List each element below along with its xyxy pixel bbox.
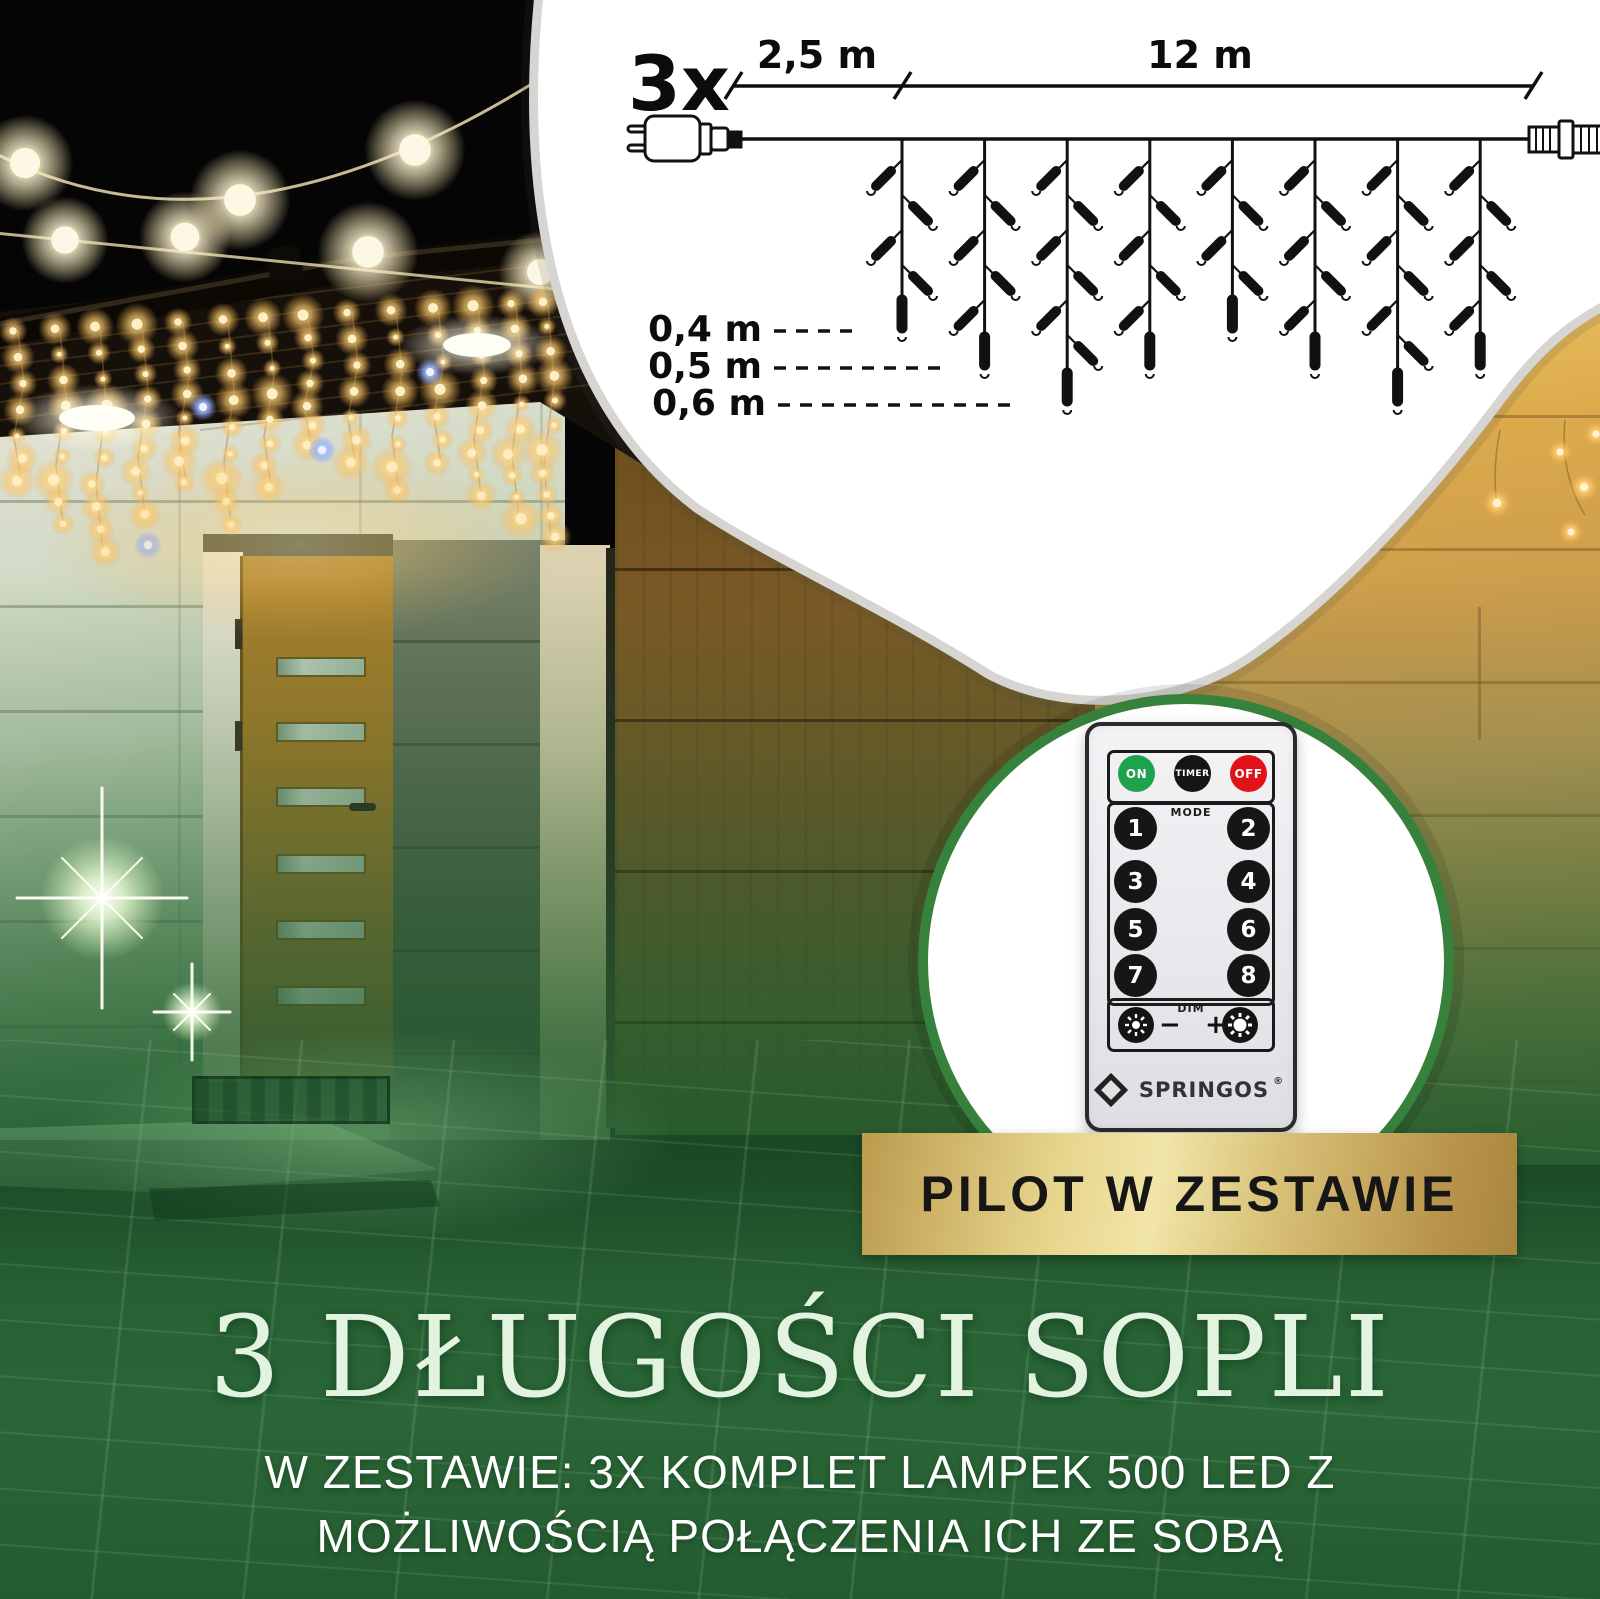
page-title: 3 DŁUGOŚCI SOPLI xyxy=(0,1302,1600,1414)
dim-label: DIM xyxy=(1089,1002,1293,1015)
on-button: ON xyxy=(1118,755,1155,792)
brand-row: SPRINGOS ® xyxy=(1089,1070,1293,1110)
brightness-high-button xyxy=(1222,1007,1258,1043)
mode-button-5: 5 xyxy=(1114,908,1157,951)
timer-button: TIMER xyxy=(1174,755,1211,792)
brand-name: SPRINGOS xyxy=(1139,1078,1269,1102)
mode-button-1: 1 xyxy=(1114,807,1157,850)
gold-banner: PILOT W ZESTAWIE xyxy=(862,1133,1517,1255)
brightness-low-button xyxy=(1118,1007,1154,1043)
product-marketing-image: 3x 2,5 m 12 m xyxy=(0,0,1600,1599)
remote-control: ONTIMEROFF MODE 12345678 DIM − + xyxy=(1085,722,1297,1132)
subtitle-line-2: MOŻLIWOŚCIĄ POŁĄCZENIA ICH ZE SOBĄ xyxy=(0,1504,1600,1568)
registered-mark: ® xyxy=(1273,1076,1283,1087)
banner-label: PILOT W ZESTAWIE xyxy=(920,1165,1458,1223)
off-button: OFF xyxy=(1230,755,1267,792)
mode-button-4: 4 xyxy=(1227,860,1270,903)
brightness-low-icon xyxy=(1123,1012,1149,1038)
mode-button-6: 6 xyxy=(1227,908,1270,951)
dim-minus-sign: − xyxy=(1159,1010,1181,1040)
subtitle: W ZESTAWIE: 3X KOMPLET LAMPEK 500 LED Z … xyxy=(0,1440,1600,1568)
mode-button-7: 7 xyxy=(1114,954,1157,997)
mode-button-2: 2 xyxy=(1227,807,1270,850)
mode-button-3: 3 xyxy=(1114,860,1157,903)
brightness-high-icon xyxy=(1226,1011,1254,1039)
springos-logo-icon xyxy=(1093,1070,1129,1110)
mode-button-8: 8 xyxy=(1227,954,1270,997)
subtitle-line-1: W ZESTAWIE: 3X KOMPLET LAMPEK 500 LED Z xyxy=(0,1440,1600,1504)
